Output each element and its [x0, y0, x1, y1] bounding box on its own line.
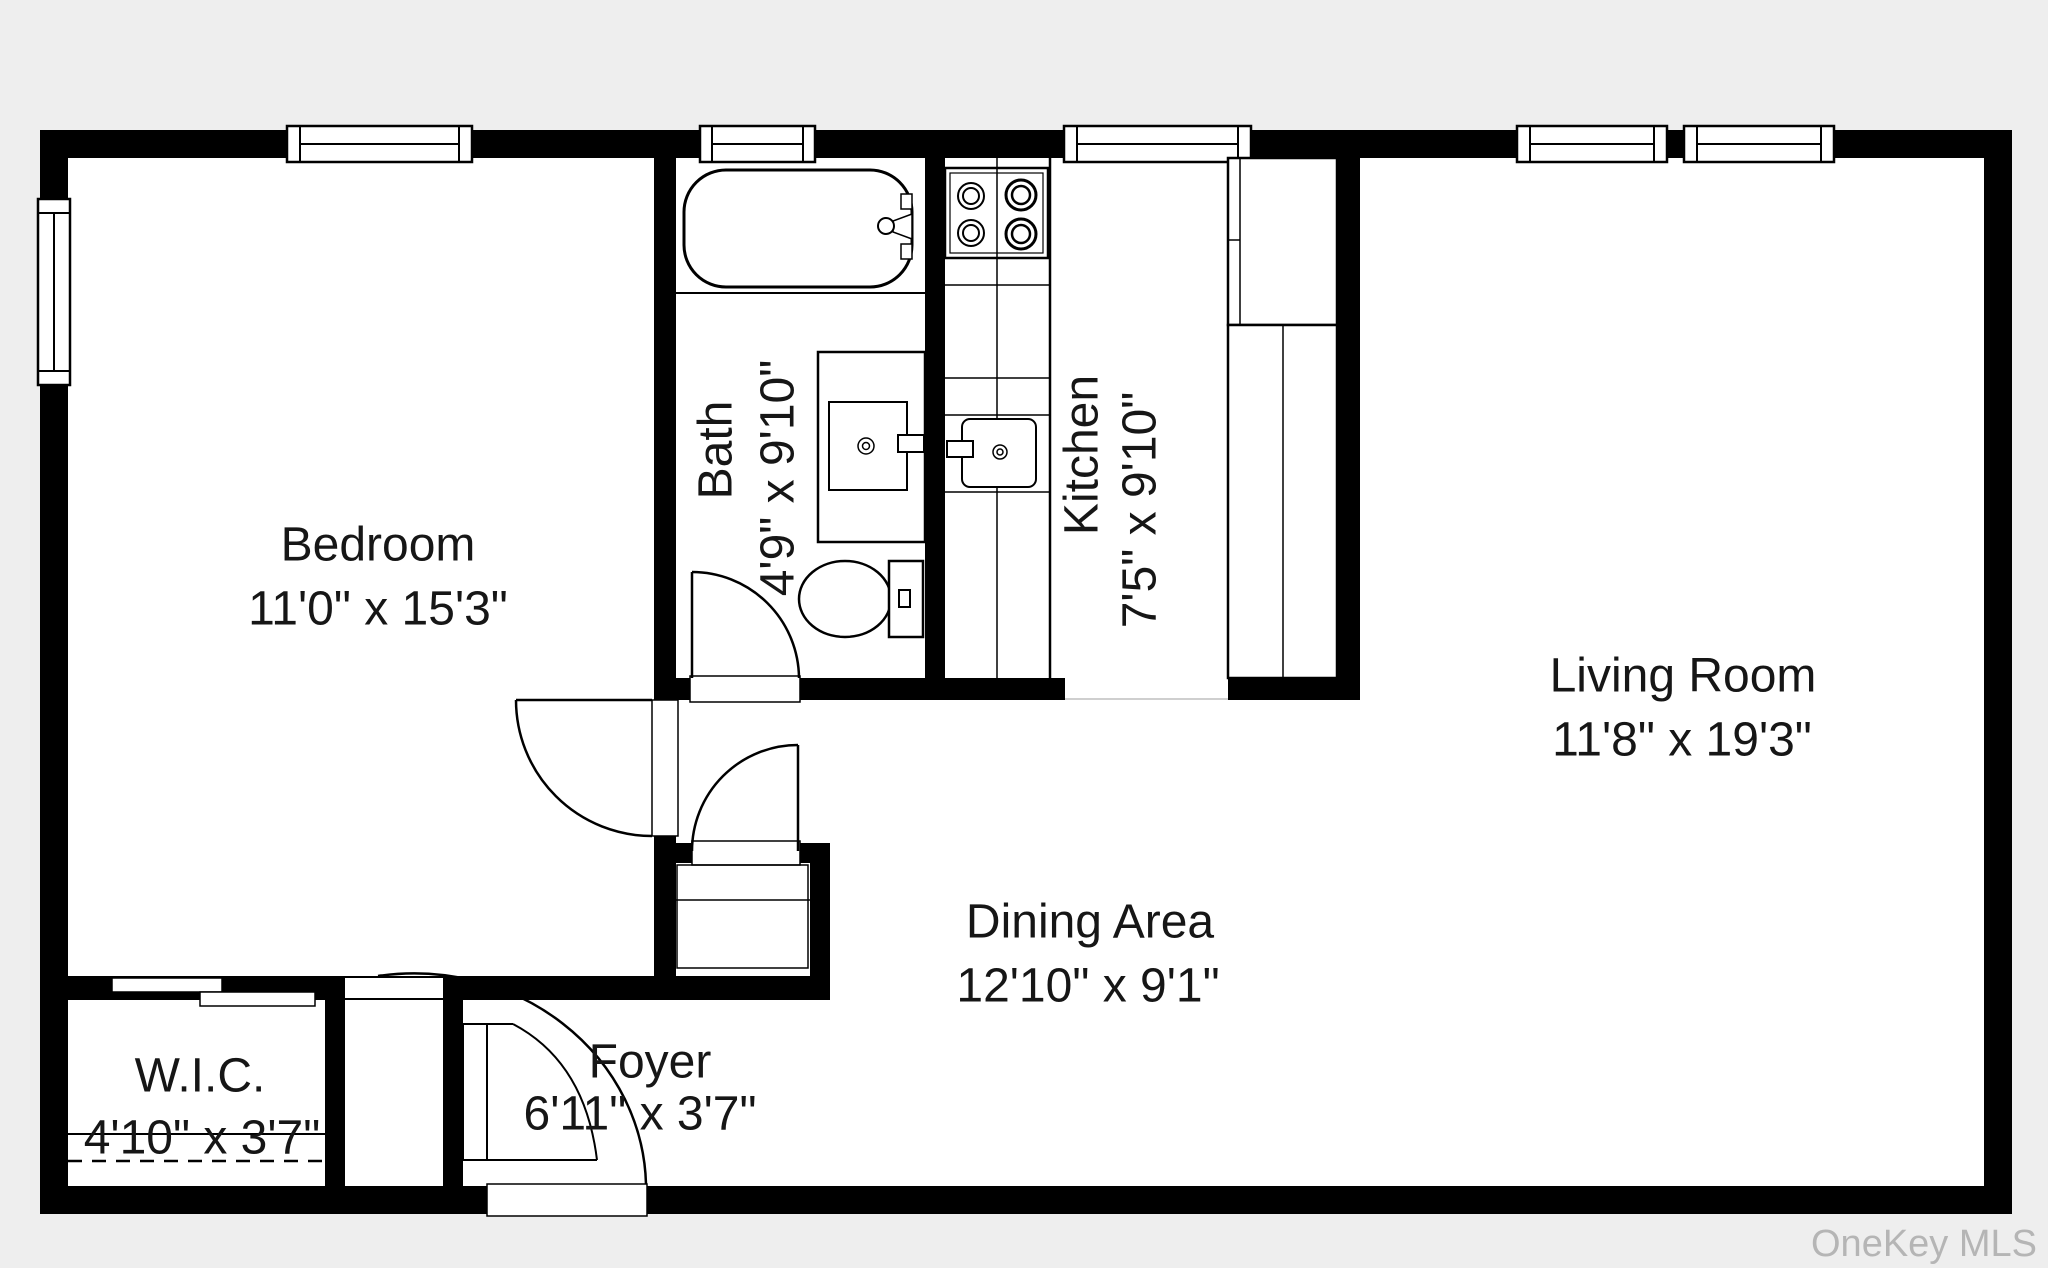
- dining-area-dims: 12'10" x 9'1": [956, 960, 1219, 1013]
- window-icon: [1517, 126, 1667, 162]
- floor-plan-page: Bedroom 11'0" x 15'3" Bath 4'9" x 9'10" …: [0, 0, 2048, 1268]
- bath-label: Bath: [690, 401, 743, 500]
- wic-dims: 4'10" x 3'7": [84, 1112, 321, 1165]
- window-icon: [38, 199, 70, 385]
- kitchen-dims: 7'5" x 9'10": [1114, 392, 1167, 629]
- window-icon: [1064, 126, 1251, 162]
- wic-label: W.I.C.: [135, 1050, 266, 1103]
- dining-area-label: Dining Area: [966, 896, 1214, 949]
- bedroom-dims: 11'0" x 15'3": [248, 583, 508, 636]
- cased-opening: [345, 974, 443, 1002]
- window-icon: [700, 126, 815, 162]
- bedroom-door-jamb: [652, 700, 678, 836]
- foyer-dims: 6'11" x 3'7": [524, 1088, 757, 1141]
- watermark: OneKey MLS: [1811, 1223, 2037, 1265]
- bath-door-jamb: [690, 676, 800, 702]
- floor-plan-canvas: Bedroom 11'0" x 15'3" Bath 4'9" x 9'10" …: [0, 0, 2048, 1268]
- foyer-label: Foyer: [589, 1036, 712, 1089]
- bedroom-label: Bedroom: [281, 519, 476, 572]
- living-room-label: Living Room: [1550, 650, 1817, 703]
- window-icon: [1684, 126, 1834, 162]
- entry-door-jamb: [487, 1184, 647, 1216]
- living-room-dims: 11'8" x 19'3": [1552, 714, 1812, 767]
- bath-dims: 4'9" x 9'10": [752, 360, 805, 597]
- window-icon: [287, 126, 472, 162]
- kitchen-label: Kitchen: [1056, 375, 1109, 535]
